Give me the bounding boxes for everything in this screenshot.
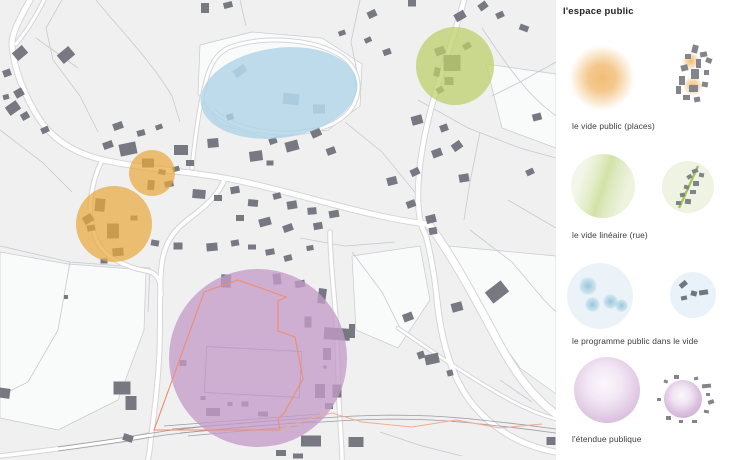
legend-label-street: le vide linéaire (rue) (572, 230, 648, 240)
map-panel (0, 0, 556, 460)
legend-label-program: le programme public dans le vide (572, 336, 698, 346)
orange-large-overlay (76, 186, 152, 262)
legend-label-extent: l'étendue publique (572, 434, 642, 444)
legend-label-places: le vide public (places) (572, 121, 655, 131)
site-analysis-figure: l'espace public le vide public (places) (0, 0, 736, 460)
green-circle-overlay (416, 27, 494, 105)
purple-sphere-icon (574, 357, 640, 423)
green-gradient-circle-icon (571, 154, 635, 218)
blue-dots-circle-icon (567, 263, 633, 329)
purple-circle-overlay (169, 269, 347, 447)
site-map-svg (0, 0, 556, 460)
street-map-thumbnail (662, 161, 714, 213)
extent-map-thumbnail (654, 368, 726, 430)
program-map-thumbnail (670, 272, 716, 318)
places-map-thumbnail (664, 44, 724, 114)
legend-title: l'espace public (563, 6, 634, 17)
legend-panel: l'espace public le vide public (places) (556, 0, 736, 460)
orange-small-overlay (129, 150, 175, 196)
orange-glow-blob-icon (568, 44, 636, 112)
